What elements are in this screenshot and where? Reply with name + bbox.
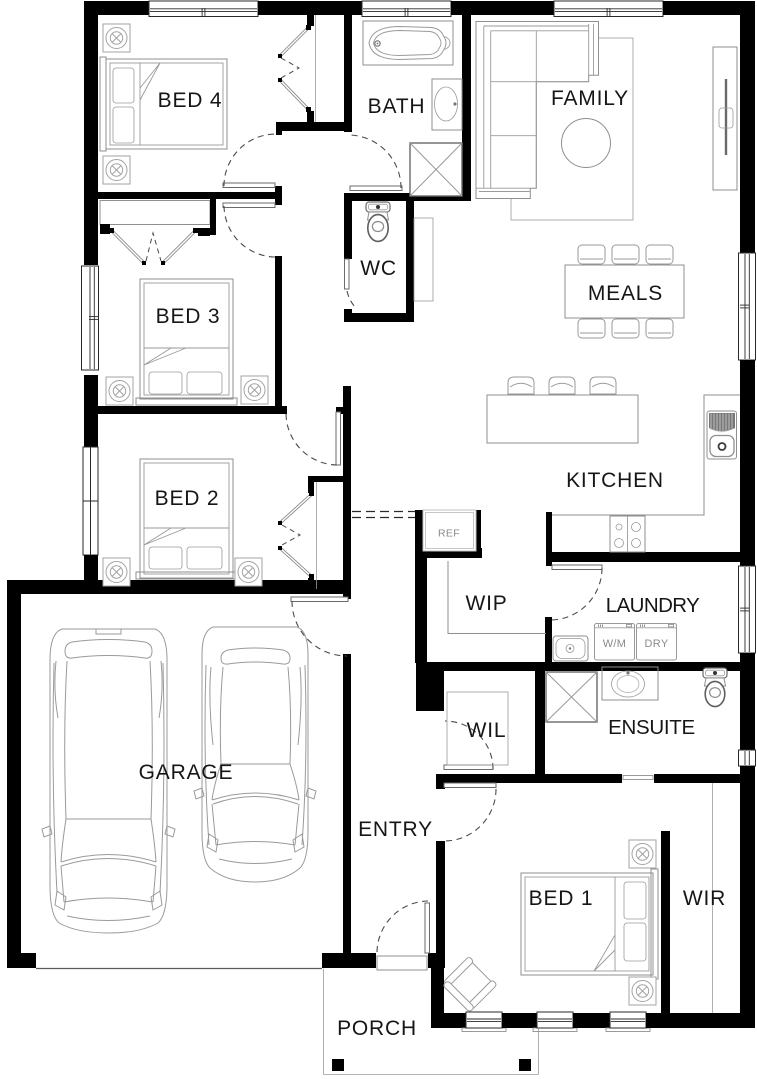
svg-text:BED 2: BED 2	[155, 487, 220, 510]
svg-text:FAMILY: FAMILY	[551, 87, 629, 110]
svg-text:LAUNDRY: LAUNDRY	[606, 594, 700, 617]
svg-text:WC: WC	[360, 257, 397, 280]
svg-text:KITCHEN: KITCHEN	[566, 469, 664, 492]
svg-text:BATH: BATH	[368, 95, 426, 118]
svg-text:BED 3: BED 3	[156, 305, 221, 328]
svg-text:W/M: W/M	[603, 638, 627, 650]
svg-text:REF: REF	[438, 528, 460, 540]
svg-text:BED 1: BED 1	[529, 887, 594, 910]
svg-text:WIR: WIR	[683, 887, 726, 910]
svg-text:ENTRY: ENTRY	[358, 818, 433, 841]
svg-text:GARAGE: GARAGE	[139, 761, 234, 784]
svg-text:DRY: DRY	[645, 638, 669, 650]
svg-text:ENSUITE: ENSUITE	[608, 716, 695, 739]
svg-text:BED 4: BED 4	[158, 89, 223, 112]
svg-text:WIL: WIL	[467, 719, 507, 742]
svg-text:MEALS: MEALS	[588, 282, 663, 305]
svg-text:WIP: WIP	[465, 592, 507, 615]
svg-text:PORCH: PORCH	[337, 1017, 417, 1040]
